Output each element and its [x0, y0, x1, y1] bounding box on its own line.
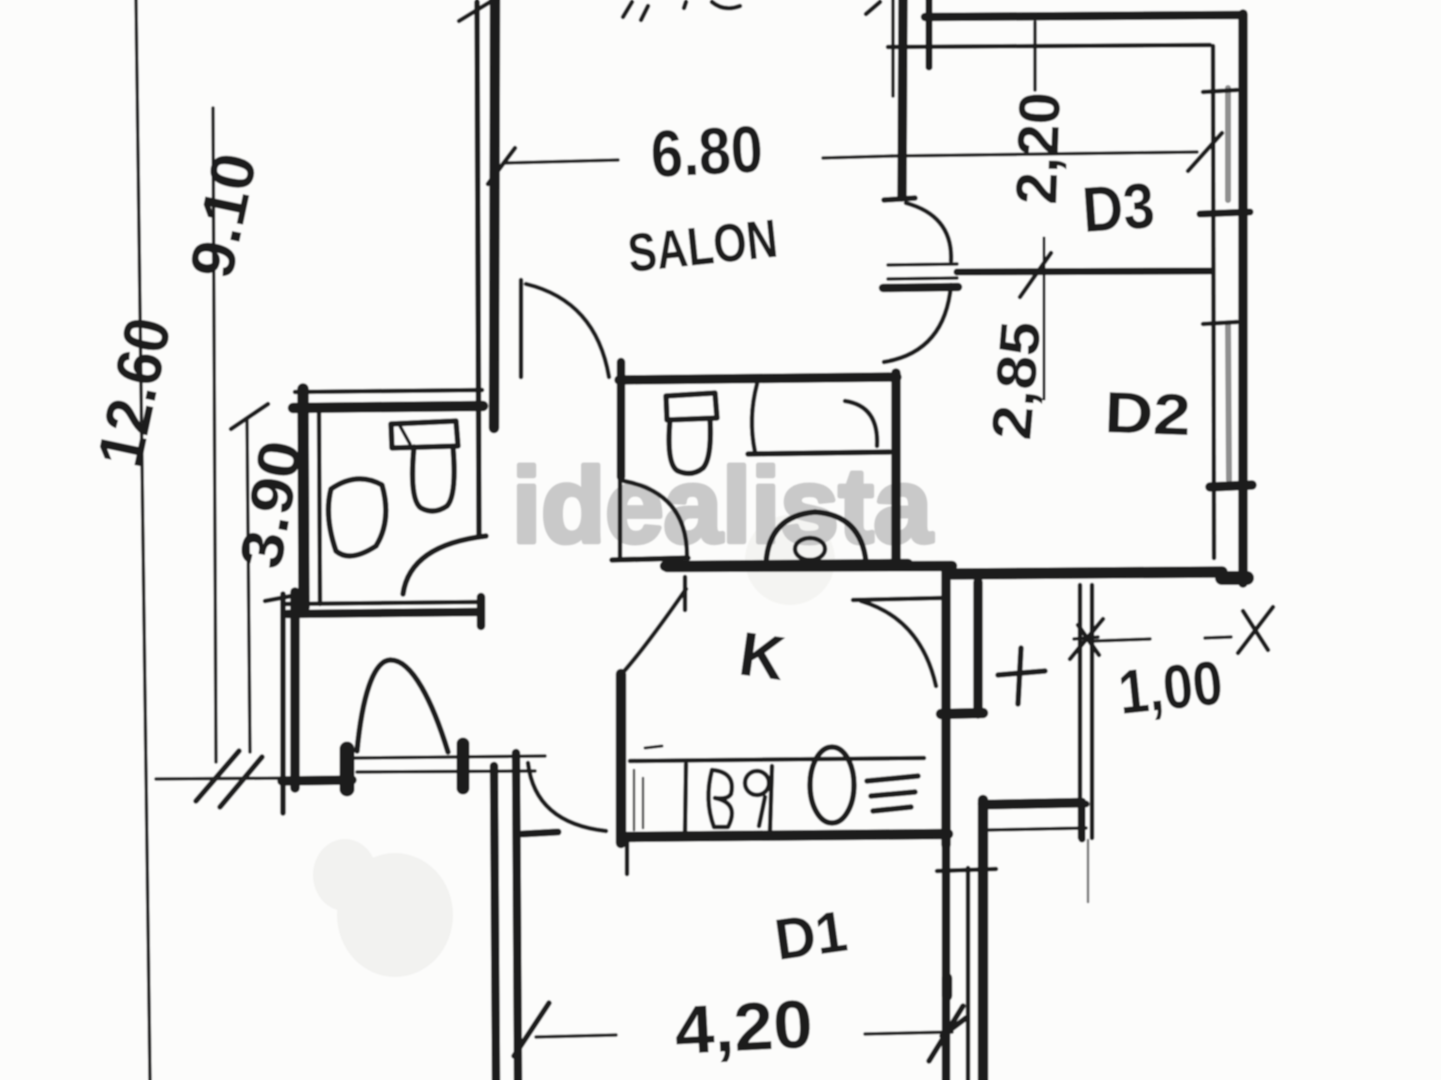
svg-text:4,20: 4,20	[673, 986, 815, 1069]
svg-text:D2: D2	[1104, 380, 1192, 448]
svg-text:6.80: 6.80	[649, 111, 765, 191]
svg-text:2,20: 2,20	[1004, 91, 1073, 205]
svg-text:1,00: 1,00	[1115, 648, 1226, 727]
svg-text:2,85: 2,85	[979, 319, 1052, 442]
svg-text:D3: D3	[1080, 169, 1157, 246]
svg-text:idealista: idealista	[512, 447, 933, 565]
svg-text:D1: D1	[771, 898, 851, 972]
